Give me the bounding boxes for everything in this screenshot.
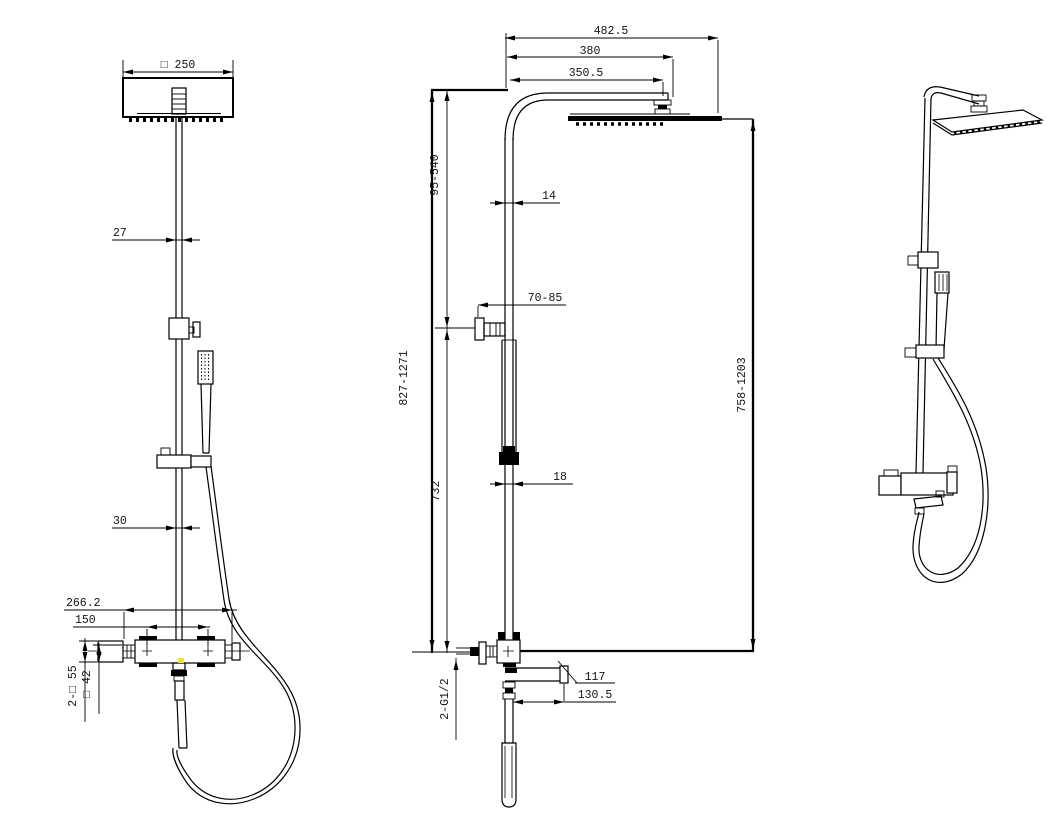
dim-label-upper-pipe: 14: [542, 190, 556, 203]
dim-pole-width: 27: [112, 227, 200, 243]
front-view: □ 250 27: [64, 59, 300, 804]
riser-pipe-side: [505, 93, 668, 640]
mixer-valve-front: [88, 636, 250, 748]
dim-label-pole-width: 27: [113, 227, 127, 240]
mixer-valve-side: [456, 632, 520, 664]
overhead-shower-side: [568, 100, 753, 124]
dim-bracket-depth: 70-85: [478, 292, 566, 317]
dim-label-arm-length: 350.5: [569, 67, 604, 80]
dim-label-head-drop-range: 95-540: [429, 154, 442, 196]
overhead-shower-3d: [933, 110, 1042, 135]
spout-side: [503, 663, 568, 683]
dim-label-handle-size: 2-□ 55: [67, 665, 80, 707]
dim-label-overall-height: 827-1271: [398, 350, 411, 405]
riser-pole-3d: [916, 98, 931, 473]
mixer-valve-3d: [879, 466, 957, 514]
dim-label-head-center: 380: [580, 45, 601, 58]
dim-lower-pipe: 18: [490, 471, 573, 487]
shower-hose-front: [173, 466, 300, 804]
dim-label-arm-overall: 482.5: [594, 25, 629, 38]
hand-shower-3d: [935, 272, 949, 349]
dim-label-bracket-depth: 70-85: [528, 292, 563, 305]
slide-bracket-3d: [905, 345, 944, 358]
dim-label-inlet-threads: 2-G1/2: [439, 678, 452, 720]
dim-inlet-threads: 2-G1/2: [439, 658, 459, 740]
dim-lower-pole-width: 30: [112, 515, 200, 531]
dim-label-head-size: □ 250: [161, 59, 196, 72]
dim-label-handle-spacing: 150: [75, 614, 96, 627]
wall-bracket-side: [475, 318, 505, 340]
overhead-shower-front: [123, 78, 233, 120]
dim-label-head-to-outlet: 758-1203: [736, 357, 749, 412]
dim-label-lower-pipe: 18: [553, 471, 567, 484]
highlight-mark: [178, 658, 184, 663]
dim-label-lower-section: 732: [430, 481, 443, 502]
extent-boundary: 95-540 732 827-1271 758-1203: [398, 90, 756, 653]
dim-label-valve-overall: 266.2: [66, 597, 101, 610]
side-view: 95-540 732 827-1271 758-1203 482.5 380 3…: [398, 25, 756, 807]
hand-shower-side: [502, 682, 516, 807]
shower-system-drawing: □ 250 27: [0, 0, 1047, 827]
diverter-3d: [908, 252, 938, 268]
diverter-front: [169, 318, 200, 339]
dim-label-spout-overall: 130.5: [578, 689, 613, 702]
hand-shower-front: [198, 351, 213, 453]
dim-label-valve-body-size: □ 42: [81, 670, 94, 698]
slider-tube-side: [499, 340, 519, 465]
dim-label-spout-reach: 117: [585, 671, 606, 684]
dim-spout-overall: 130.5: [513, 684, 616, 705]
riser-pole-front: [176, 117, 182, 663]
perspective-view: [879, 87, 1042, 583]
dim-head-size: □ 250: [123, 59, 233, 77]
dim-label-lower-pole-width: 30: [113, 515, 127, 528]
dim-upper-pipe: 14: [490, 190, 560, 206]
shower-arm-3d: [924, 87, 987, 112]
technical-drawing-sheet: □ 250 27: [0, 0, 1047, 827]
